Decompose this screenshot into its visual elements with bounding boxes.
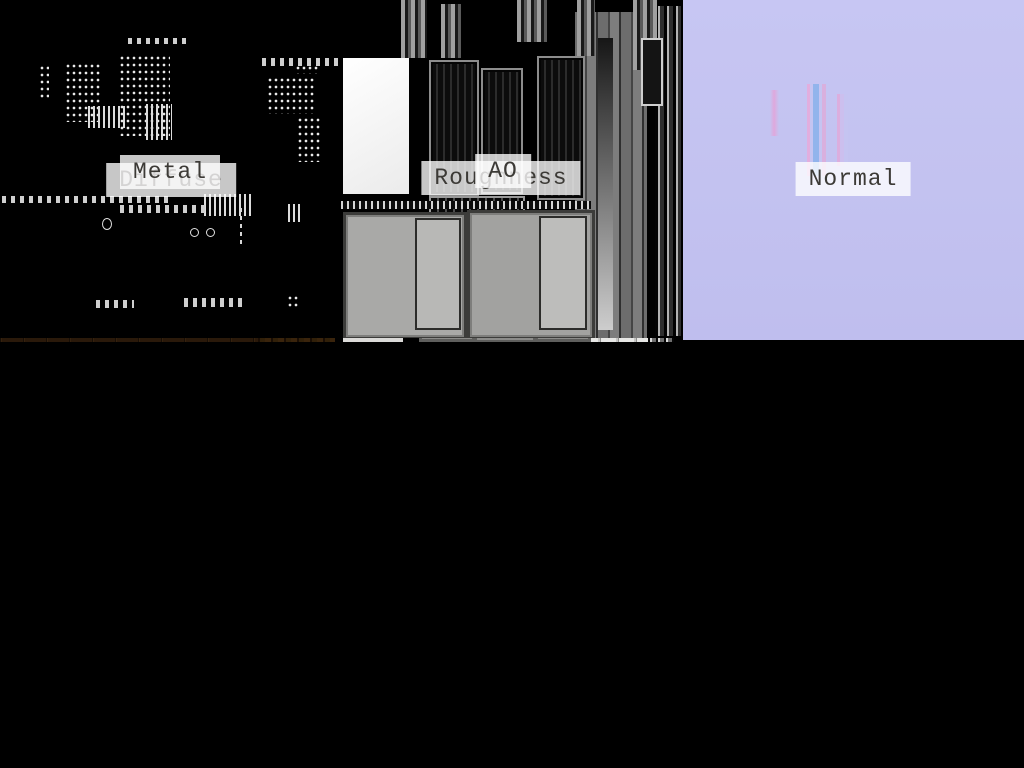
texture-fragment xyxy=(288,296,298,308)
texture-fragment xyxy=(204,194,252,216)
texture-fragment xyxy=(598,38,613,330)
texture-fragment xyxy=(415,218,461,330)
texture-fragment xyxy=(206,228,215,237)
texture-fragment xyxy=(298,118,322,162)
texture-fragment xyxy=(128,38,186,44)
texture-fragment xyxy=(240,208,242,244)
texture-fragment xyxy=(120,205,206,213)
texture-fragment xyxy=(837,94,848,166)
texture-fragment xyxy=(441,4,461,58)
texture-fragment xyxy=(184,298,246,307)
texture-fragment xyxy=(40,66,49,98)
tile-ao-map: AO xyxy=(341,0,681,338)
texture-fragment xyxy=(288,204,301,222)
texture-fragment xyxy=(268,78,314,114)
texture-fragment xyxy=(2,196,170,203)
texture-fragment xyxy=(577,0,595,56)
texture-fragment xyxy=(88,106,128,128)
tile-metal-map: Metal xyxy=(0,0,341,338)
texture-fragment xyxy=(96,300,134,308)
texture-fragment xyxy=(146,104,172,140)
texture-fragment xyxy=(517,0,547,42)
texture-fragment xyxy=(102,218,112,230)
texture-fragment xyxy=(641,38,663,106)
tile-normal-map: Normal xyxy=(683,0,1024,340)
texture-fragment xyxy=(190,228,199,237)
texture-fragment xyxy=(262,58,340,66)
metal-map-label: Metal xyxy=(120,155,220,189)
texture-fragment xyxy=(341,201,591,209)
ao-map-label: AO xyxy=(475,154,531,188)
texture-fragment xyxy=(296,66,318,74)
texture-fragment xyxy=(343,58,409,194)
texture-fragment xyxy=(539,216,587,330)
texture-fragment xyxy=(401,0,427,58)
normal-map-label: Normal xyxy=(796,162,911,196)
texture-fragment xyxy=(770,90,779,136)
texture-map-sheet: Diffuse Roughness Normal xyxy=(0,0,1024,768)
